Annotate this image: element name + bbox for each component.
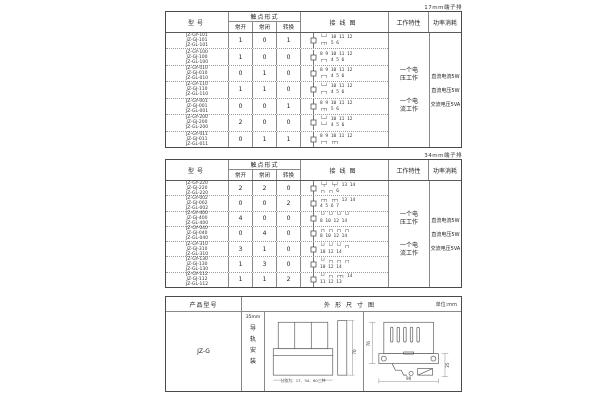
coil-icon bbox=[310, 181, 317, 196]
front-view-drawing: 70 分别为：17、34、60三种 bbox=[265, 312, 363, 392]
table-header: 型号 触点形式 常开 常闭 转换 接线图 工作特性 功率消耗 bbox=[166, 12, 461, 33]
diagram-bottom-row: ┌┬┐ 5 6 bbox=[320, 107, 353, 112]
co-count: 0 bbox=[276, 66, 300, 81]
power-dc-current: 直流电流5W bbox=[431, 73, 459, 80]
nc-count: 0 bbox=[252, 33, 276, 48]
coil-icon bbox=[310, 132, 317, 147]
mount-type-cell: 35mm 导 轨 安 装 bbox=[242, 312, 264, 391]
diagram-top-row: └┘ └┘ └┘ ┌┐ bbox=[320, 244, 350, 249]
terminal-numbers: 8 9 10 11 12 ┌─┐ ┌┬┐ bbox=[320, 134, 353, 145]
coil-icon bbox=[310, 211, 317, 226]
nc-count: 0 bbox=[252, 115, 276, 130]
header-product-model: 产品型号 bbox=[166, 297, 241, 312]
co-count: 2 bbox=[276, 273, 300, 287]
coil-icon bbox=[310, 257, 317, 272]
table-row: JZ-GY-110 JZ-GJ-110 JZ-GL-110 1 1 0 └─┘ … bbox=[166, 81, 388, 97]
spec-table-34mm: 型号 触点形式 常开 常闭 转换 接线图 工作特性 功率消耗 JZ-GY-220… bbox=[165, 159, 462, 288]
power-ac-voltage: 交流电压5VA bbox=[431, 245, 461, 252]
table-header: 型号 触点形式 常开 常闭 转换 接线图 工作特性 功率消耗 bbox=[166, 160, 461, 181]
table-row: JZ-GY-002 JZ-GJ-002 JZ-GL-002 0 0 2 ┌┬┐ … bbox=[166, 195, 388, 210]
diagram-bottom-row: 8 10 12 14 bbox=[320, 234, 350, 239]
coil-icon bbox=[310, 66, 317, 81]
model-numbers: JZ-GY-002 JZ-GJ-002 JZ-GL-002 bbox=[166, 196, 228, 210]
diagram-top-row: 8 9 10 11 12 bbox=[320, 134, 353, 139]
wiring-diagram: ┌┐ ┌┐ ┌┐ ┌┐ 8 10 12 14 bbox=[300, 227, 388, 241]
nc-count: 1 bbox=[252, 242, 276, 256]
diagram-bottom-row: ┌┐ ┌┐ 6 bbox=[320, 189, 355, 194]
co-count: 0 bbox=[276, 212, 300, 226]
diagram-top-row: └┬┘ └┬┘ 13 14 bbox=[320, 183, 355, 188]
table-row: JZ-GY-011 JZ-GJ-011 JZ-GL-011 0 1 1 8 9 … bbox=[166, 131, 388, 147]
header-working-characteristic: 工作特性 bbox=[388, 12, 428, 32]
header-model: 型号 bbox=[166, 12, 228, 32]
co-count: 0 bbox=[276, 82, 300, 97]
model-numbers: JZ-GY-011 JZ-GJ-011 JZ-GL-011 bbox=[166, 132, 228, 147]
wiring-diagram: └┘ └┘ └┘ └┘ 8 10 12 14 bbox=[300, 212, 388, 226]
power-consumption-cell: 直流电流5W 直流电压5W 交流电压5VA bbox=[429, 181, 461, 287]
no-count: 1 bbox=[228, 82, 252, 97]
header-changeover: 转换 bbox=[276, 170, 300, 180]
header-model: 型号 bbox=[166, 160, 228, 180]
co-count: 0 bbox=[276, 115, 300, 130]
table-row: JZ-GY-040 JZ-GJ-040 JZ-GL-040 0 4 0 ┌┐ ┌… bbox=[166, 226, 388, 241]
coil-icon bbox=[310, 242, 317, 257]
diagram-bottom-row: 8 10 12 14 bbox=[320, 219, 350, 224]
dim-side-width: 90 bbox=[405, 376, 411, 381]
wiring-diagram: └─┘ 10 11 12 └─┘ 4 5 6 bbox=[300, 115, 388, 130]
working-characteristic-cell: 一个电压工作 一个电流工作 bbox=[388, 181, 429, 287]
power-ac-voltage: 交流电压5VA bbox=[431, 101, 461, 108]
wiring-diagram: └┬┘ └┬┘ 13 14 ┌┐ ┌┐ 6 bbox=[300, 181, 388, 195]
diagram-top-row: └┘ └┘ └┘ └┘ bbox=[320, 213, 350, 218]
coil-icon bbox=[310, 226, 317, 241]
header-wiring-diagram: 接线图 bbox=[300, 12, 388, 32]
nc-count: 4 bbox=[252, 227, 276, 241]
product-model-column: 产品型号 JZ-G bbox=[166, 297, 241, 391]
header-power-consumption: 功率消耗 bbox=[428, 12, 461, 32]
spec-table-17mm: 型号 触点形式 常开 常闭 转换 接线图 工作特性 功率消耗 JZ-GY-101… bbox=[165, 11, 462, 148]
model-numbers: JZ-GY-101 JZ-GJ-101 JZ-GL-101 bbox=[166, 33, 228, 48]
diagram-bottom-row: 10 12 14 bbox=[320, 250, 350, 255]
model-numbers: JZ-GY-110 JZ-GJ-110 JZ-GL-110 bbox=[166, 82, 228, 97]
dim-side-height: 76 bbox=[365, 340, 370, 346]
no-count: 1 bbox=[228, 49, 252, 64]
rail-size-label: 35mm bbox=[246, 315, 261, 320]
coil-icon bbox=[310, 82, 317, 97]
terminal-numbers: └─┘ 10 11 12 ┌─┐ 4 5 6 bbox=[320, 84, 353, 95]
model-numbers: JZ-GY-040 JZ-GJ-040 JZ-GL-040 bbox=[166, 227, 228, 241]
header-power-consumption: 功率消耗 bbox=[428, 160, 461, 180]
header-contact-form: 触点形式 bbox=[228, 12, 300, 22]
nc-count: 0 bbox=[252, 99, 276, 114]
spec-sheet-page: 17mm端子排 型号 触点形式 常开 常闭 转换 接线图 工作特性 功率消耗 J… bbox=[0, 0, 600, 400]
diagram-bottom-row: 4 5 6 7 bbox=[320, 204, 355, 209]
diagram-bottom-row: ┌─┐ ┌┬┐ bbox=[320, 140, 353, 145]
wiring-diagram: 8 9 10 11 12 ┌┬┐ 5 6 bbox=[300, 99, 388, 114]
rail-mount-label: 导 轨 安 装 bbox=[250, 323, 256, 367]
header-normally-open: 常开 bbox=[228, 22, 252, 32]
diagram-bottom-row: ┌─┐ 4 5 6 bbox=[320, 90, 353, 95]
diagram-top-row: 8 9 10 11 12 bbox=[320, 52, 353, 57]
no-count: 0 bbox=[228, 132, 252, 147]
table-row: JZ-GY-220 JZ-GJ-220 JZ-GL-220 2 2 0 └┬┘ … bbox=[166, 181, 388, 195]
no-count: 0 bbox=[228, 99, 252, 114]
no-count: 3 bbox=[228, 242, 252, 256]
terminal-numbers: 8 9 10 11 12 ┌─┐ 4 5 6 bbox=[320, 52, 353, 63]
wiring-diagram: 8 9 10 11 12 ┌─┐ 4 5 6 bbox=[300, 49, 388, 64]
nc-count: 0 bbox=[252, 212, 276, 226]
unit-label: 单位:mm bbox=[436, 301, 457, 308]
nc-count: 3 bbox=[252, 257, 276, 271]
diagram-top-row: └┘ ┌┐ ┌┐ ┌┐ bbox=[320, 259, 350, 264]
diagram-top-row: ┌┐ ┌┐ ┌┐ ┌┐ bbox=[320, 228, 350, 233]
terminal-numbers: 8 9 10 11 12 ┌─┐ 4 5 6 bbox=[320, 68, 353, 79]
diagram-top-row: └─┘ 10 11 12 bbox=[320, 35, 353, 40]
dim-front-height: 70 bbox=[352, 349, 357, 355]
co-count: 0 bbox=[276, 227, 300, 241]
table-body: JZ-GY-101 JZ-GJ-101 JZ-GL-101 1 0 1 └─┘ … bbox=[166, 33, 461, 147]
work-current-label: 一个电流工作 bbox=[399, 98, 419, 113]
diagram-bottom-row: 11 12 13 bbox=[320, 280, 353, 285]
drawing-area: 35mm 导 轨 安 装 70 bbox=[242, 312, 461, 391]
terminal-numbers: ┌┬┐ ┌┬┐ 13 14 4 5 6 7 bbox=[320, 198, 355, 209]
nc-count: 1 bbox=[252, 132, 276, 147]
co-count: 0 bbox=[276, 242, 300, 256]
no-count: 2 bbox=[228, 115, 252, 130]
terminal-numbers: ┌┐ ┌┐ ┌┐ ┌┐ 8 10 12 14 bbox=[320, 228, 350, 239]
terminal-numbers: └┘ ┌┐ ┌┬┐ 14 11 12 13 bbox=[320, 274, 353, 285]
model-numbers: JZ-GY-100 JZ-GJ-100 JZ-GL-100 bbox=[166, 49, 228, 64]
outline-drawing-column: 外形尺寸图 单位:mm 35mm 导 轨 安 装 bbox=[241, 297, 461, 391]
width-variants-caption: 分别为：17、34、60三种 bbox=[281, 378, 326, 383]
co-count: 1 bbox=[276, 99, 300, 114]
wiring-diagram: └─┘ 10 11 12 ┌─┐ 4 5 6 bbox=[300, 82, 388, 97]
table-row: JZ-GY-310 JZ-GJ-310 JZ-GL-310 3 1 0 └┘ └… bbox=[166, 241, 388, 256]
co-count: 0 bbox=[276, 49, 300, 64]
table-row: JZ-GY-010 JZ-GJ-010 JZ-GL-010 0 1 0 8 9 … bbox=[166, 65, 388, 81]
wiring-diagram: └┘ ┌┐ ┌┐ ┌┐ 10 12 14 bbox=[300, 257, 388, 271]
no-count: 1 bbox=[228, 257, 252, 271]
no-count: 1 bbox=[228, 33, 252, 48]
model-rows: JZ-GY-220 JZ-GJ-220 JZ-GL-220 2 2 0 └┬┘ … bbox=[166, 181, 388, 287]
wiring-diagram: 8 9 10 11 12 ┌─┐ ┌┬┐ bbox=[300, 132, 388, 147]
din-rail-profile bbox=[392, 363, 407, 375]
power-dc-voltage: 直流电压5W bbox=[431, 87, 459, 94]
no-count: 4 bbox=[228, 212, 252, 226]
table-row: JZ-GY-200 JZ-GJ-200 JZ-GL-200 2 0 0 └─┘ … bbox=[166, 114, 388, 130]
co-count: 1 bbox=[276, 33, 300, 48]
co-count: 1 bbox=[276, 132, 300, 147]
model-numbers: JZ-GY-200 JZ-GJ-200 JZ-GL-200 bbox=[166, 115, 228, 130]
power-consumption-cell: 直流电流5W 直流电压5W 交流电压5VA bbox=[429, 33, 461, 147]
header-normally-closed: 常闭 bbox=[252, 22, 276, 32]
wiring-diagram: 8 9 10 11 12 ┌─┐ 4 5 6 bbox=[300, 66, 388, 81]
no-count: 2 bbox=[228, 181, 252, 195]
no-count: 1 bbox=[228, 273, 252, 287]
wiring-diagram: └─┘ 10 11 12 ┌┬┐ 5 6 bbox=[300, 33, 388, 48]
diagram-top-row: 8 9 10 11 12 bbox=[320, 101, 353, 106]
nc-count: 0 bbox=[252, 196, 276, 210]
diagram-bottom-row: ┌┬┐ 5 6 bbox=[320, 41, 353, 46]
work-voltage-label: 一个电压工作 bbox=[399, 211, 419, 226]
terminal-numbers: └┘ ┌┐ ┌┐ ┌┐ 10 12 14 bbox=[320, 259, 350, 270]
coil-icon bbox=[310, 99, 317, 114]
nc-count: 0 bbox=[252, 49, 276, 64]
terminal-numbers: └─┘ 10 11 12 └─┘ 4 5 6 bbox=[320, 117, 353, 128]
diagram-top-row: └─┘ 10 11 12 bbox=[320, 117, 353, 122]
power-dc-current: 直流电流5W bbox=[431, 217, 459, 224]
terminal-numbers: └┘ └┘ └┘ ┌┐ 10 12 14 bbox=[320, 244, 350, 255]
coil-icon bbox=[310, 272, 317, 287]
table-row: JZ-GY-101 JZ-GJ-101 JZ-GL-101 1 0 1 └─┘ … bbox=[166, 33, 388, 48]
header-outline-title: 外形尺寸图 bbox=[324, 300, 379, 309]
model-numbers: JZ-GY-001 JZ-GJ-001 JZ-GL-001 bbox=[166, 99, 228, 114]
product-model-value: JZ-G bbox=[166, 312, 241, 391]
table-row: JZ-GY-400 JZ-GJ-400 JZ-GL-400 4 0 0 └┘ └… bbox=[166, 211, 388, 226]
no-count: 0 bbox=[228, 196, 252, 210]
work-current-label: 一个电流工作 bbox=[399, 242, 419, 257]
nc-count: 1 bbox=[252, 273, 276, 287]
header-normally-open: 常开 bbox=[228, 170, 252, 180]
coil-icon bbox=[310, 115, 317, 130]
model-numbers: JZ-GY-010 JZ-GJ-010 JZ-GL-010 bbox=[166, 66, 228, 81]
header-changeover: 转换 bbox=[276, 22, 300, 32]
terminal-numbers: └─┘ 10 11 12 ┌┬┐ 5 6 bbox=[320, 35, 353, 46]
no-count: 0 bbox=[228, 227, 252, 241]
coil-icon bbox=[310, 196, 317, 211]
wiring-diagram: └┘ └┘ └┘ ┌┐ 10 12 14 bbox=[300, 242, 388, 256]
side-view-cell: 76 35 90 bbox=[363, 312, 462, 391]
coil-icon bbox=[310, 50, 317, 65]
working-characteristic-cell: 一个电压工作 一个电流工作 bbox=[388, 33, 429, 147]
wiring-diagram: └┘ ┌┐ ┌┬┐ 14 11 12 13 bbox=[300, 273, 388, 287]
table-body: JZ-GY-220 JZ-GJ-220 JZ-GL-220 2 2 0 └┬┘ … bbox=[166, 181, 461, 287]
co-count: 2 bbox=[276, 196, 300, 210]
terminal-numbers: └┘ └┘ └┘ └┘ 8 10 12 14 bbox=[320, 213, 350, 224]
diagram-bottom-row: ┌─┐ 4 5 6 bbox=[320, 74, 353, 79]
terminal-numbers: 8 9 10 11 12 ┌┬┐ 5 6 bbox=[320, 101, 353, 112]
nc-count: 2 bbox=[252, 181, 276, 195]
model-numbers: JZ-GY-400 JZ-GJ-400 JZ-GL-400 bbox=[166, 212, 228, 226]
diagram-top-row: └─┘ 10 11 12 bbox=[320, 84, 353, 89]
terminal-numbers: └┬┘ └┬┘ 13 14 ┌┐ ┌┐ 6 bbox=[320, 183, 355, 194]
model-numbers: JZ-GY-112 JZ-GJ-112 JZ-GL-112 bbox=[166, 273, 228, 287]
model-rows: JZ-GY-101 JZ-GJ-101 JZ-GL-101 1 0 1 └─┘ … bbox=[166, 33, 388, 147]
terminal-block-label-17mm: 17mm端子排 bbox=[424, 3, 462, 11]
table-row: JZ-GY-130 JZ-GJ-130 JZ-GL-130 1 3 0 └┘ ┌… bbox=[166, 256, 388, 271]
terminal-block-label-34mm: 34mm端子排 bbox=[424, 151, 462, 159]
table-row: JZ-GY-001 JZ-GJ-001 JZ-GL-001 0 0 1 8 9 … bbox=[166, 98, 388, 114]
model-numbers: JZ-GY-130 JZ-GJ-130 JZ-GL-130 bbox=[166, 257, 228, 271]
vent-slots bbox=[390, 327, 419, 342]
outline-header: 外形尺寸图 单位:mm bbox=[242, 297, 461, 312]
diagram-top-row: 8 9 10 11 12 bbox=[320, 68, 353, 73]
diagram-bottom-row: ┌─┐ 4 5 6 bbox=[320, 58, 353, 63]
header-contact-form: 触点形式 bbox=[228, 160, 300, 170]
work-voltage-label: 一个电压工作 bbox=[399, 67, 419, 82]
diagram-bottom-row: └─┘ 4 5 6 bbox=[320, 123, 353, 128]
diagram-top-row: ┌┬┐ ┌┬┐ 13 14 bbox=[320, 198, 355, 203]
power-dc-voltage: 直流电压5W bbox=[431, 231, 459, 238]
nc-count: 1 bbox=[252, 82, 276, 97]
table-row: JZ-GY-112 JZ-GJ-112 JZ-GL-112 1 1 2 └┘ ┌… bbox=[166, 272, 388, 287]
dim-rail-width: 35 bbox=[445, 362, 450, 368]
header-working-characteristic: 工作特性 bbox=[388, 160, 428, 180]
front-view-cell: 70 分别为：17、34、60三种 bbox=[264, 312, 363, 391]
no-count: 0 bbox=[228, 66, 252, 81]
dimension-table: 产品型号 JZ-G 外形尺寸图 单位:mm 35mm 导 轨 安 装 bbox=[165, 296, 462, 392]
nc-count: 1 bbox=[252, 66, 276, 81]
header-wiring-diagram: 接线图 bbox=[300, 160, 388, 180]
wiring-diagram: ┌┬┐ ┌┬┐ 13 14 4 5 6 7 bbox=[300, 196, 388, 210]
co-count: 0 bbox=[276, 181, 300, 195]
coil-icon bbox=[310, 33, 317, 48]
model-numbers: JZ-GY-220 JZ-GJ-220 JZ-GL-220 bbox=[166, 181, 228, 195]
model-numbers: JZ-GY-310 JZ-GJ-310 JZ-GL-310 bbox=[166, 242, 228, 256]
table-row: JZ-GY-100 JZ-GJ-100 JZ-GL-100 1 0 0 8 9 … bbox=[166, 48, 388, 64]
side-view-drawing: 76 35 90 bbox=[364, 312, 462, 392]
diagram-top-row: └┘ ┌┐ ┌┬┐ 14 bbox=[320, 274, 353, 279]
co-count: 0 bbox=[276, 257, 300, 271]
header-normally-closed: 常闭 bbox=[252, 170, 276, 180]
diagram-bottom-row: 10 12 14 bbox=[320, 265, 350, 270]
